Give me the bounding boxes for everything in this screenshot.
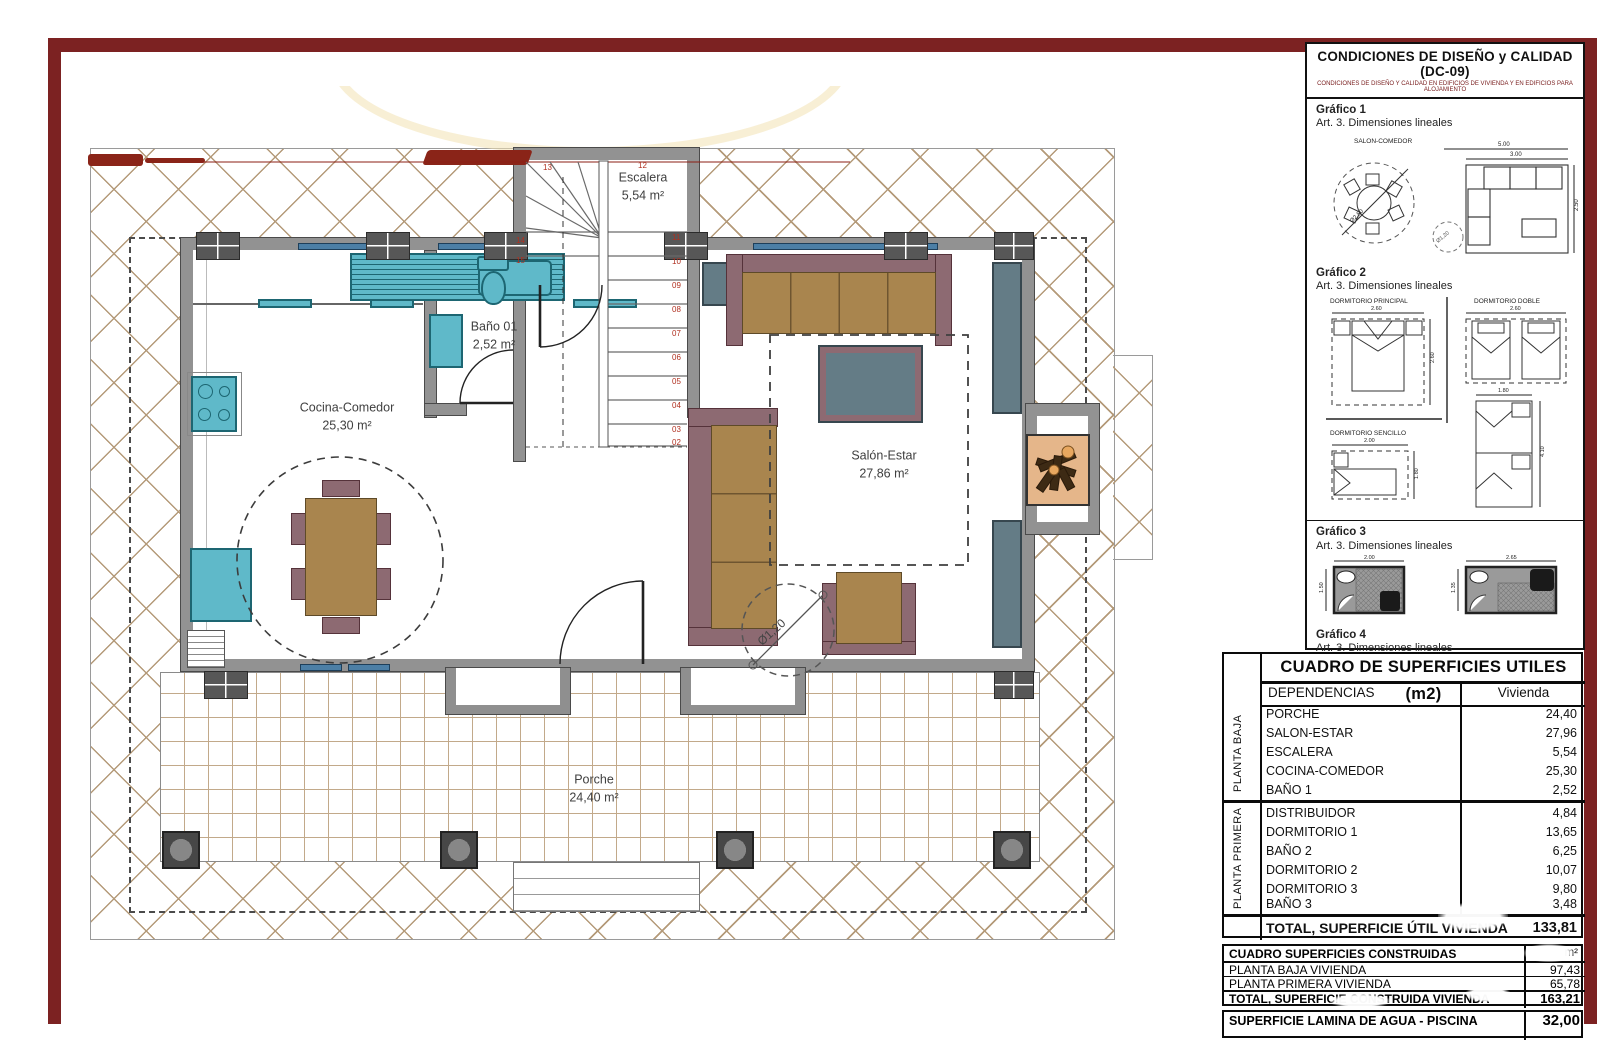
row-value: 10,07 <box>1546 861 1577 880</box>
row-value: 97,43 <box>1526 963 1580 977</box>
room-label-bano: Baño 01 2,52 m² <box>471 318 518 354</box>
column-header-vivienda: Vivienda <box>1462 681 1585 705</box>
row-label: DORMITORIO 1 <box>1266 823 1357 842</box>
watermark-blotch <box>1524 944 1574 962</box>
grafico-2-section: Gráfico 2 Art. 3. Dimensiones lineales D… <box>1307 262 1583 517</box>
svg-text:2.50: 2.50 <box>1574 198 1580 210</box>
armchair-seat <box>836 572 902 644</box>
divider <box>1224 800 1585 803</box>
counter-segment <box>573 299 637 308</box>
fireplace <box>1026 434 1090 506</box>
row-value: 4,84 <box>1553 804 1577 823</box>
row-value: 13,65 <box>1546 823 1577 842</box>
watermark-blotch <box>1438 903 1508 931</box>
dining-chair <box>322 617 360 634</box>
table-row: BAÑO 26,25 <box>1260 842 1585 861</box>
grafico-1-diagram: SALON-COMEDOR Ø2,50 5.00 3.00 2.50 <box>1316 131 1582 257</box>
stove <box>191 376 237 432</box>
svg-text:4.10: 4.10 <box>1540 446 1546 457</box>
table-row: BAÑO 12,52 <box>1260 781 1585 800</box>
counter-segment <box>370 299 414 308</box>
drawing-sheet: Ø1,20 11 10 09 08 07 06 05 04 03 02 <box>0 0 1600 1024</box>
window <box>348 664 390 671</box>
row-label: BAÑO 3 <box>1266 895 1312 914</box>
sofa-seat <box>742 272 936 334</box>
fridge <box>190 548 252 622</box>
total-value: 133,81 <box>1533 917 1577 940</box>
conditions-panel: CONDICIONES DE DISEÑO y CALIDAD (DC-09) … <box>1305 42 1585 650</box>
room-label-salon: Salón-Estar 27,86 m² <box>851 447 916 483</box>
pool-area-table: SUPERFICIE LAMINA DE AGUA - PISCINA 32,0… <box>1222 1010 1583 1038</box>
sofa2-arm <box>688 627 778 646</box>
table-row: SALON-ESTAR27,96 <box>1260 724 1585 743</box>
grafico-3-diagram: 2.00 1.50 2.65 1.35 <box>1316 553 1582 619</box>
table-row: PLANTA PRIMERA VIVIENDA <box>1229 977 1391 991</box>
row-value: 3,48 <box>1553 895 1577 914</box>
porch-column <box>993 831 1031 869</box>
svg-text:1.80: 1.80 <box>1414 468 1420 479</box>
row-label: PORCHE <box>1266 705 1319 724</box>
svg-text:2.00: 2.00 <box>1364 555 1375 561</box>
bath-sink <box>429 314 463 368</box>
row-value: 65,78 <box>1526 977 1580 991</box>
pillar <box>196 232 240 260</box>
toilet-bowl <box>481 271 506 305</box>
row-value: 6,25 <box>1553 842 1577 861</box>
pool-label: SUPERFICIE LAMINA DE AGUA - PISCINA <box>1229 1014 1478 1028</box>
porch-column <box>162 831 200 869</box>
table-row: DORMITORIO 113,65 <box>1260 823 1585 842</box>
dining-table <box>305 498 377 616</box>
svg-text:1.80: 1.80 <box>1498 388 1509 394</box>
table-row: PORCHE24,40 <box>1260 705 1585 724</box>
pillar <box>366 232 410 260</box>
porch-column <box>440 831 478 869</box>
svg-text:1.50: 1.50 <box>1319 582 1325 593</box>
row-value: 5,54 <box>1553 743 1577 762</box>
row-label: BAÑO 2 <box>1266 842 1312 861</box>
room-label-cocina: Cocina-Comedor 25,30 m² <box>300 399 394 435</box>
grafico-1-section: Gráfico 1 Art. 3. Dimensiones lineales S… <box>1307 99 1583 262</box>
row-label: COCINA-COMEDOR <box>1266 762 1384 781</box>
sofa2-seat <box>711 425 777 629</box>
svg-text:DORMITORIO PRINCIPAL: DORMITORIO PRINCIPAL <box>1330 298 1408 305</box>
total-row: TOTAL, SUPERFICIE ÚTIL VIVIENDA 133,81 <box>1260 917 1585 940</box>
table-row: PLANTA BAJA VIVIENDA <box>1229 963 1366 977</box>
pillar <box>484 232 528 260</box>
row-label: DISTRIBUIDOR <box>1266 804 1356 823</box>
dining-chair <box>322 480 360 497</box>
pillar <box>884 232 928 260</box>
porch-door-recess <box>681 668 805 714</box>
panel-subtitle: CONDICIONES DE DISEÑO Y CALIDAD EN EDIFI… <box>1307 79 1583 99</box>
group-label-planta-primera: PLANTA PRIMERA <box>1232 804 1244 912</box>
room-label-porche: Porche 24,40 m² <box>569 771 618 807</box>
sofa-arm <box>935 254 952 346</box>
tv-cabinet <box>992 262 1022 414</box>
wall-stair-right <box>687 250 700 418</box>
firewood-icon <box>1028 436 1088 504</box>
row-label: SALON-ESTAR <box>1266 724 1353 743</box>
svg-text:3.00: 3.00 <box>1510 152 1522 158</box>
room-label-escalera: Escalera 5,54 m² <box>619 169 668 205</box>
pool-value: 32,00 <box>1522 1012 1580 1029</box>
hatch-ground-step <box>1113 355 1153 560</box>
built-table-title: CUADRO SUPERFICIES CONSTRUIDAS <box>1229 947 1456 961</box>
pillar <box>664 232 708 260</box>
row-label: DORMITORIO 2 <box>1266 861 1357 880</box>
svg-text:2.00: 2.00 <box>1364 438 1375 444</box>
porch-door-recess <box>446 668 570 714</box>
pillar <box>994 232 1034 260</box>
row-value: 24,40 <box>1546 705 1577 724</box>
table-row: BAÑO 33,48 <box>1260 895 1585 914</box>
red-mark <box>88 154 143 166</box>
group-label-planta-baja: PLANTA BAJA <box>1232 707 1244 799</box>
row-value: 27,96 <box>1546 724 1577 743</box>
pillar <box>204 671 248 699</box>
panel-title: CONDICIONES DE DISEÑO y CALIDAD (DC-09) <box>1307 44 1583 79</box>
table-row: ESCALERA5,54 <box>1260 743 1585 762</box>
svg-text:5.00: 5.00 <box>1498 142 1510 148</box>
svg-text:Ø1,20: Ø1,20 <box>1435 230 1450 244</box>
window <box>300 664 342 671</box>
svg-text:2.60: 2.60 <box>1371 306 1382 312</box>
useful-areas-table: CUADRO DE SUPERFICIES UTILES (m2) DEPEND… <box>1222 652 1583 938</box>
wall-bath-bottom <box>424 403 467 416</box>
dining-chair <box>375 568 391 600</box>
table-row: DORMITORIO 210,07 <box>1260 861 1585 880</box>
grafico-2-diagram: DORMITORIO PRINCIPAL DORMITORIO DOBLE 2.… <box>1316 293 1582 511</box>
svg-text:SALON-COMEDOR: SALON-COMEDOR <box>1354 138 1412 145</box>
entry-steps <box>513 862 700 912</box>
row-label: BAÑO 1 <box>1266 781 1312 800</box>
pillar <box>994 671 1034 699</box>
row-label: ESCALERA <box>1266 743 1333 762</box>
dining-chair <box>375 513 391 545</box>
pantry-shelves <box>187 630 225 668</box>
svg-text:DORMITORIO DOBLE: DORMITORIO DOBLE <box>1474 298 1541 305</box>
grafico-3-section: Gráfico 3 Art. 3. Dimensiones lineales 2… <box>1307 520 1583 624</box>
red-mark <box>145 158 205 163</box>
watermark-blotch <box>1466 986 1510 1002</box>
tv-cabinet <box>992 520 1022 648</box>
table-row: COCINA-COMEDOR25,30 <box>1260 762 1585 781</box>
row-value: 2,52 <box>1553 781 1577 800</box>
watermark-blotch <box>1486 876 1516 892</box>
svg-text:2.60: 2.60 <box>1510 306 1521 312</box>
counter-segment <box>258 299 312 308</box>
row-value: 25,30 <box>1546 762 1577 781</box>
red-mark <box>200 161 850 163</box>
coffee-table <box>818 345 923 423</box>
column-header-dependencias: DEPENDENCIAS <box>1268 681 1375 705</box>
svg-text:DORMITORIO SENCILLO: DORMITORIO SENCILLO <box>1330 430 1406 437</box>
svg-text:2.65: 2.65 <box>1506 555 1517 561</box>
total-value: 163,21 <box>1526 991 1580 1006</box>
watermark-blotch <box>1330 994 1390 1008</box>
svg-text:1.35: 1.35 <box>1451 582 1457 593</box>
svg-text:2.60: 2.60 <box>1430 352 1436 363</box>
sofa-arm <box>726 254 743 346</box>
frame-right <box>1584 38 1597 1024</box>
porch-column <box>716 831 754 869</box>
frame-left <box>48 38 61 1024</box>
table-row: DISTRIBUIDOR4,84 <box>1260 804 1585 823</box>
porch-slab <box>160 672 1040 862</box>
